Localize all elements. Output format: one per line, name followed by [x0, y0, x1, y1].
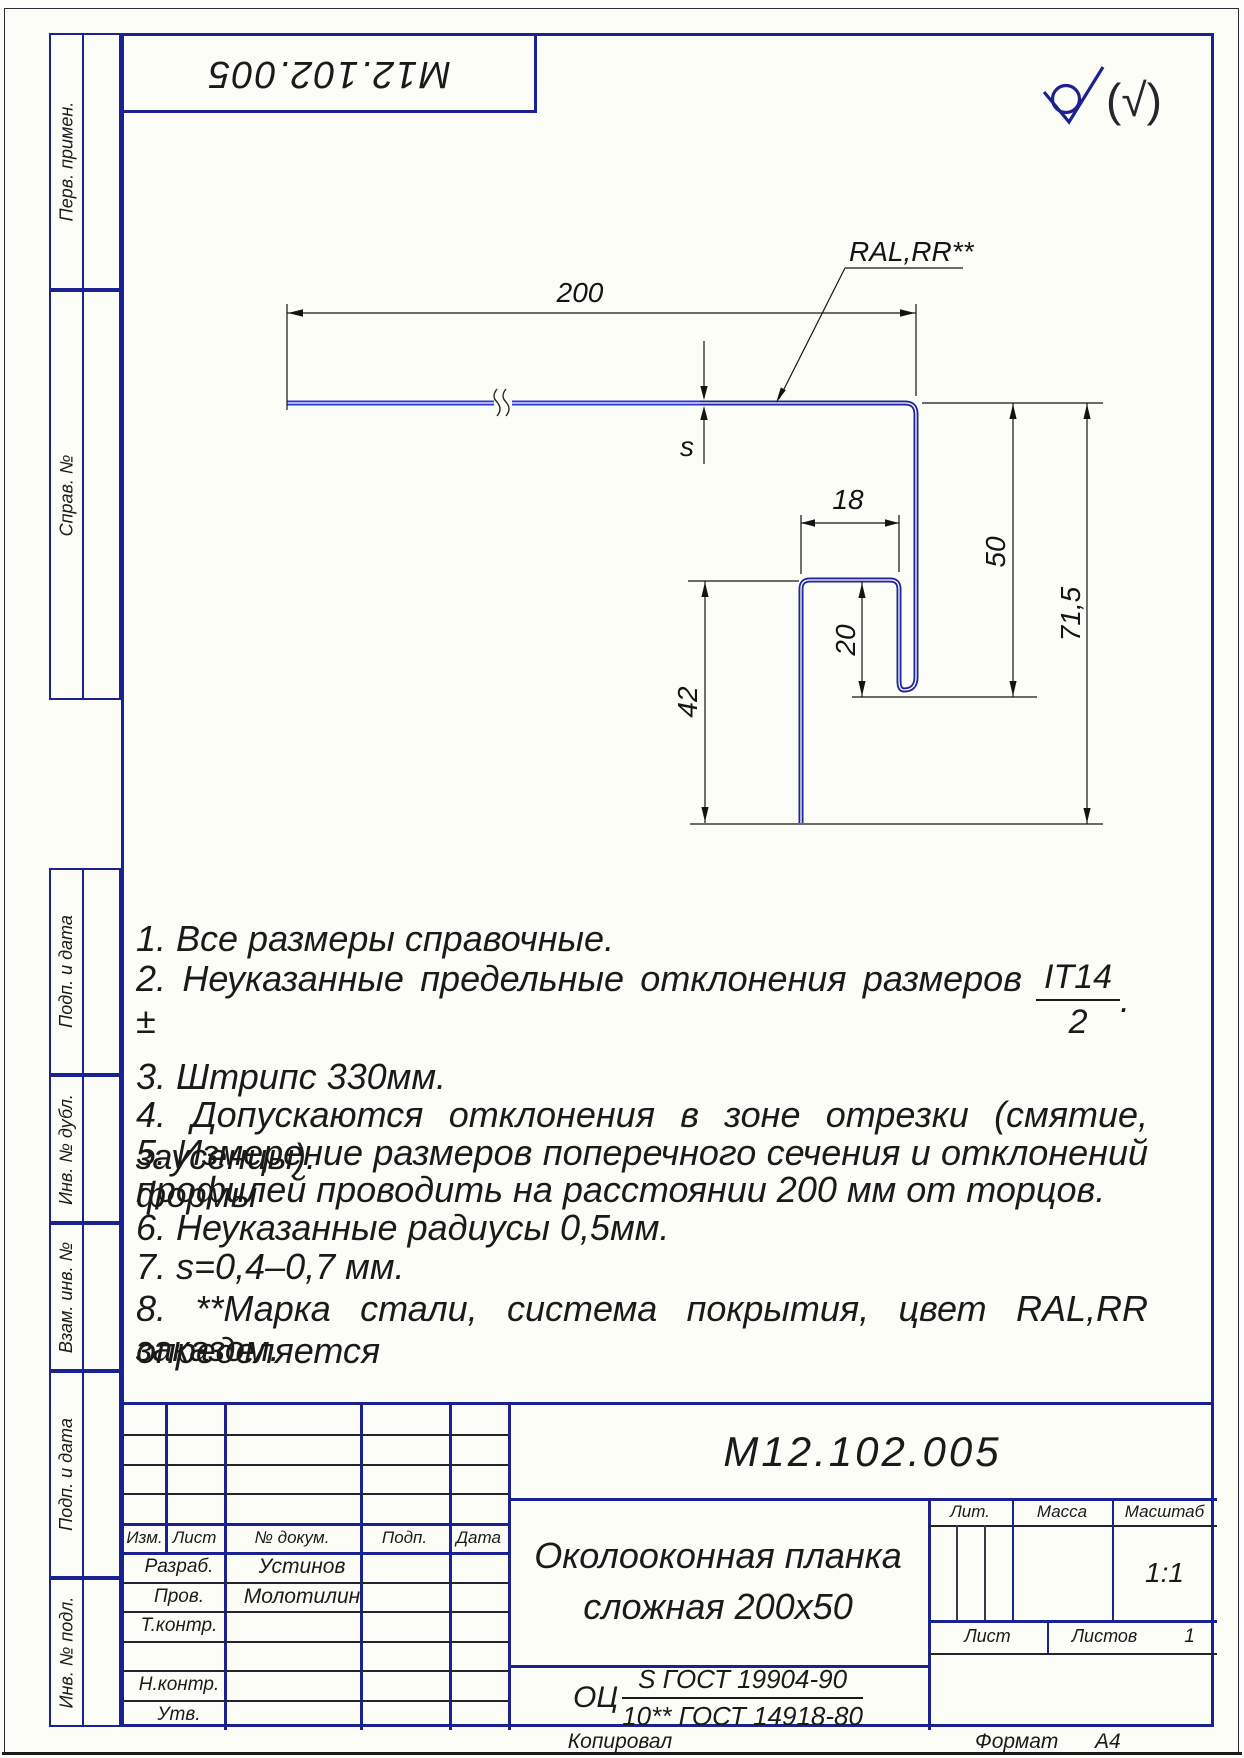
footer-format-label: Формат — [975, 1730, 1058, 1754]
drawing-sheet: Перв. примен. Справ. № Подп. и дата Инв.… — [0, 0, 1244, 1758]
dim-42-label: 42 — [672, 686, 703, 718]
dim-20-label: 20 — [830, 624, 861, 657]
note-6: 6. Неуказанные радиусы 0,5мм. — [136, 1207, 669, 1249]
note-2-fraction: IT14 2 — [1036, 958, 1120, 1042]
tb-role-razrab: Разраб. — [124, 1552, 229, 1582]
tb-sheets-value: 1 — [1162, 1620, 1217, 1653]
tb-name-empty — [224, 1641, 370, 1670]
tb-header-podp: Подп. — [360, 1523, 449, 1552]
roughness-icon — [1044, 67, 1103, 122]
tb-line — [124, 1464, 508, 1466]
title-block: М12.102.005 Околооконная планка сложная … — [121, 1402, 1214, 1727]
tb-header-list: Лист — [165, 1523, 224, 1552]
break-symbol — [494, 389, 512, 416]
tb-role-empty — [124, 1641, 229, 1670]
note-2-fraction-numerator: IT14 — [1036, 958, 1120, 1001]
tb-line — [449, 1405, 452, 1730]
note-2-text: 2. Неуказанные предельные отклонения раз… — [136, 958, 1022, 1042]
tb-header-lit: Лит. — [928, 1498, 1012, 1525]
profile-outline — [287, 403, 916, 823]
note-8-line1-text: 8. **Марка стали, система покрытия, цвет… — [136, 1288, 1148, 1372]
tb-role-prov: Пров. — [124, 1582, 229, 1611]
dimension-arrows — [288, 309, 1091, 823]
note-2-fraction-denominator: 2 — [1036, 1001, 1120, 1042]
tb-designation: М12.102.005 — [508, 1405, 1217, 1498]
coating-leader-label: RAL,RR** — [849, 236, 975, 267]
tb-material-prefix: ОЦ — [573, 1681, 618, 1715]
tb-material-denominator: 10** ГОСТ 14918-80 — [622, 1699, 863, 1732]
tb-header-list2: Лист — [928, 1620, 1047, 1653]
tb-material-fraction: S ГОСТ 19904-90 10** ГОСТ 14918-80 — [622, 1664, 863, 1732]
tb-name-prov: Молотилин — [224, 1582, 370, 1611]
tb-header-massa: Масса — [1012, 1498, 1112, 1525]
note-8-line2: заказом. — [136, 1328, 280, 1370]
tb-header-data: Дата — [449, 1523, 508, 1552]
tb-name-razrab: Устинов — [224, 1552, 370, 1582]
tb-material-numerator: S ГОСТ 19904-90 — [622, 1664, 863, 1699]
dim-200-label: 200 — [556, 277, 604, 308]
tb-role-utv: Утв. — [124, 1700, 229, 1730]
tb-role-tkontr: Т.контр. — [124, 1611, 229, 1641]
note-2-period: . — [1120, 979, 1130, 1021]
tb-line — [124, 1434, 508, 1436]
footer-copied-label: Копировал — [450, 1730, 790, 1754]
note-1: 1. Все размеры справочные. — [136, 918, 614, 960]
note-7: 7. s=0,4–0,7 мм. — [136, 1246, 405, 1288]
dim-18-label: 18 — [832, 484, 864, 515]
tb-header-izm: Изм. — [124, 1523, 165, 1552]
tb-lit-divider — [984, 1525, 986, 1620]
tb-line — [124, 1493, 508, 1495]
tb-line — [928, 1498, 931, 1730]
note-3: 3. Штрипс 330мм. — [136, 1056, 446, 1098]
note-5-line2: профилей проводить на расстоянии 200 мм … — [136, 1169, 1105, 1211]
note-2: 2. Неуказанные предельные отклонения раз… — [136, 960, 1130, 1040]
tb-header-masshtab: Масштаб — [1112, 1498, 1217, 1525]
tb-role-nkontr: Н.контр. — [124, 1670, 229, 1700]
footer-format-value: А4 — [1095, 1730, 1121, 1754]
tb-part-name-line1: Околооконная планка — [534, 1531, 901, 1581]
tb-line — [928, 1653, 1217, 1655]
roughness-note-text: (√) — [1106, 74, 1162, 126]
dim-s-label: s — [680, 431, 694, 462]
tb-scale-value: 1:1 — [1112, 1525, 1217, 1620]
tb-part-name: Околооконная планка сложная 200х50 — [508, 1498, 928, 1665]
dim-71-5-label: 71,5 — [1055, 586, 1086, 641]
tb-material: ОЦ S ГОСТ 19904-90 10** ГОСТ 14918-80 — [508, 1665, 928, 1730]
page-bottom-edge — [2, 1752, 1242, 1755]
tb-header-ndoc: № докум. — [224, 1523, 360, 1552]
tb-header-listov: Листов — [1047, 1620, 1162, 1653]
tb-part-name-line2: сложная 200х50 — [583, 1582, 852, 1632]
dim-50-label: 50 — [980, 536, 1011, 568]
note-8-line1: 8. **Марка стали, система покрытия, цвет… — [136, 1288, 1148, 1372]
tb-name-tkontr — [224, 1611, 370, 1641]
tb-name-nkontr — [224, 1670, 370, 1700]
tb-lit-divider — [956, 1525, 958, 1620]
tb-name-utv — [224, 1700, 370, 1730]
